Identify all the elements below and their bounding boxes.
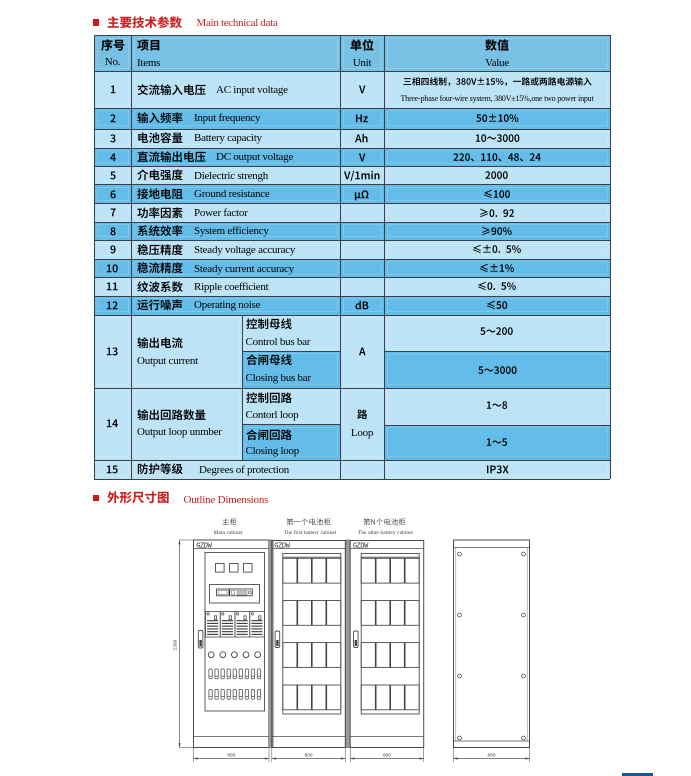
- svg-text:800: 800: [487, 753, 495, 759]
- svg-text:GZDW: GZDW: [196, 543, 212, 551]
- svg-text:2260: 2260: [173, 639, 179, 650]
- svg-text:GZDW: GZDW: [353, 543, 369, 551]
- svg-text:800: 800: [383, 753, 391, 759]
- svg-text:GZDW: GZDW: [274, 543, 290, 551]
- svg-text:800: 800: [305, 753, 313, 759]
- svg-text:800: 800: [227, 753, 235, 759]
